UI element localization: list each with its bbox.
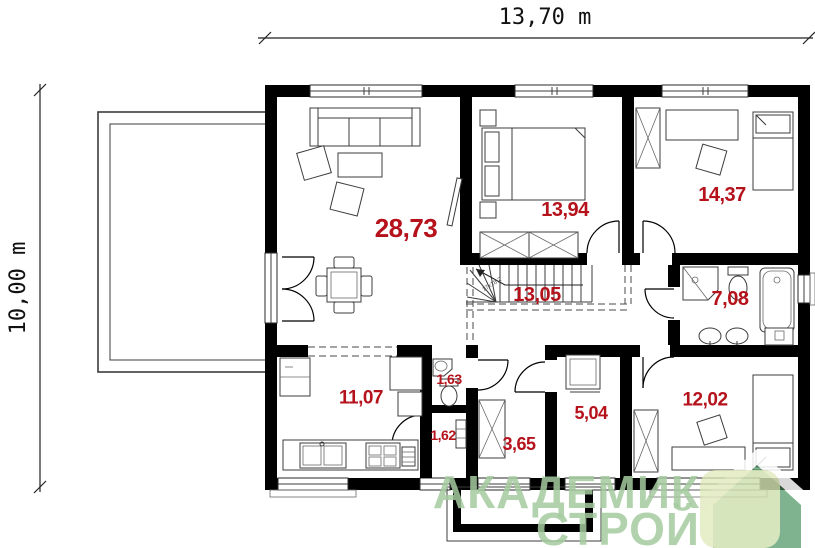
bedroom1-window <box>515 85 593 97</box>
desk-2 <box>666 110 738 140</box>
single-bed-2 <box>753 112 793 190</box>
kitchen-furniture <box>280 357 422 470</box>
area-label-bedroom2: 14,37 <box>698 184 746 206</box>
bedroom2-door <box>643 221 675 253</box>
area-label-utility: 5,04 <box>574 403 608 423</box>
living-window <box>310 85 422 97</box>
bathroom-window <box>798 273 815 305</box>
dimension-width-label: 13,70 m <box>499 5 592 30</box>
lobby-shelf <box>456 420 466 448</box>
stove <box>366 443 400 468</box>
nightstand-2 <box>480 202 496 218</box>
watermark-line2: СТРОЙ <box>536 503 700 548</box>
bedroom3-door <box>643 357 674 388</box>
area-label-bedroom3: 12,02 <box>682 390 727 411</box>
kitchen-sink <box>300 442 346 468</box>
double-sink <box>699 328 748 345</box>
kitchen-cabinet-left <box>280 358 310 396</box>
bedroom2-wardrobe <box>636 108 660 168</box>
living-room-furniture <box>297 108 462 313</box>
wc-door <box>478 360 508 390</box>
bedroom1-furniture <box>480 110 585 258</box>
sofa <box>310 108 420 146</box>
dimension-top: 13,70 m <box>258 5 815 44</box>
terrace-door <box>265 253 314 323</box>
fridge <box>390 357 422 416</box>
dimension-left: 10,00 m <box>6 84 46 493</box>
dining-table <box>316 257 372 313</box>
tv-panel <box>447 178 462 226</box>
entry-wardrobe <box>479 400 505 458</box>
terrace <box>98 112 270 372</box>
washer <box>566 355 600 392</box>
area-label-bathroom: 7,08 <box>712 288 749 310</box>
bath-cabinet <box>765 328 793 345</box>
chair-3 <box>697 415 727 445</box>
double-bed <box>482 128 585 200</box>
bedroom2-furniture <box>636 108 793 190</box>
floorplan-canvas: 13,70 m 10,00 m <box>0 0 815 548</box>
dimension-height-label: 10,00 m <box>6 242 31 335</box>
watermark: АКАДЕМИК СТРОЙ <box>433 457 810 548</box>
bedroom2-window <box>662 85 748 97</box>
armchair-1 <box>297 146 332 181</box>
floor-plan-page: 13,70 m 10,00 m <box>0 0 815 548</box>
watermark-logo-icon <box>700 457 810 548</box>
bathroom-door <box>645 289 674 318</box>
area-label-living: 28,73 <box>375 213 438 243</box>
kitchen-rack <box>402 447 415 466</box>
area-label-wc: 1,63 <box>436 371 462 387</box>
bedroom1-wardrobe <box>480 232 578 258</box>
chair-2 <box>696 144 727 175</box>
bedroom3-wardrobe <box>634 410 658 472</box>
area-label-entry: 3,65 <box>502 434 536 454</box>
bathtub <box>760 268 794 332</box>
area-label-hall: 13,05 <box>513 284 561 306</box>
bedroom1-door <box>587 221 619 253</box>
area-label-bedroom1: 13,94 <box>541 199 590 221</box>
utility-door <box>515 362 545 392</box>
area-label-lobby: 1,62 <box>430 427 456 443</box>
area-label-kitchen: 11,07 <box>339 388 383 409</box>
nightstand-1 <box>480 110 496 126</box>
coffee-table <box>338 153 382 177</box>
armchair-2 <box>330 182 364 216</box>
kitchen-window <box>270 478 356 497</box>
